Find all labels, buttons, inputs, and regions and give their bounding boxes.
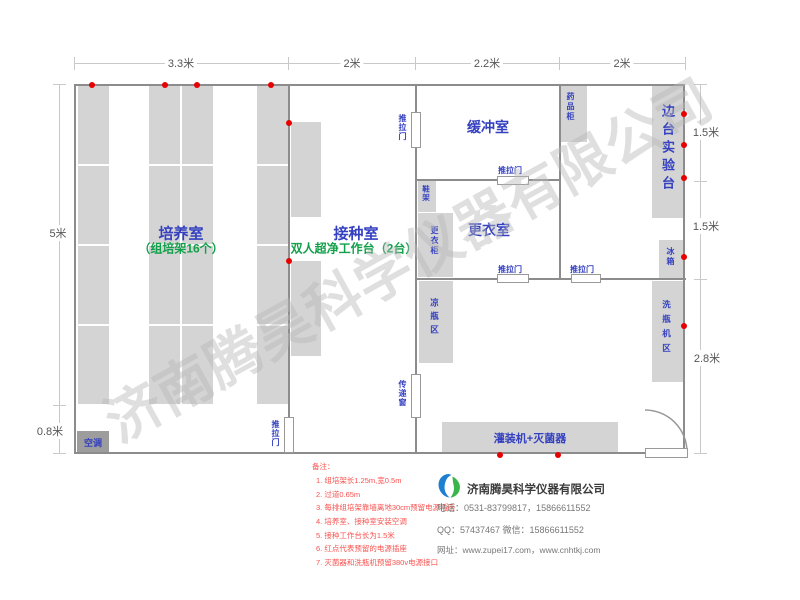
dim-tick [415,57,416,70]
shoe-rack-label: 鞋架 [422,185,430,202]
room-sublabel-cultivation: （组培架16个） [138,240,223,257]
dim-tick [288,57,289,70]
room-label-buffer: 缓冲室 [467,117,509,137]
company-website: 网址：www.zupei17.com，www.cnhtkj.com [437,544,600,556]
sliding-door-cultivation [284,417,294,453]
company-name: 济南腾昊科学仪器有限公司 [467,481,605,497]
note-item-4: 4. 培养室、接种室安装空调 [316,518,407,526]
dim-tick [694,453,707,454]
dim-tick [559,57,560,70]
wall-buffer-changing [415,179,561,181]
power-socket-dot [681,111,687,117]
filling-machine-sterilizer-label: 灌装机+灭菌器 [494,430,566,446]
dim-right-2: 1.5米 [690,218,722,234]
sliding-door-buffer-changing [497,176,529,185]
floor-plan-canvas: 3.3米 2米 2.2米 2米 5米 0.8米 1.5米 1.5米 2.8米 空… [0,0,800,600]
power-socket-dot [555,452,561,458]
power-socket-dot [89,82,95,88]
power-socket-dot [194,82,200,88]
dim-tick [53,405,66,406]
medicine-cabinet-label: 药品柜 [566,92,574,122]
dim-tick [53,453,66,454]
company-qq-wechat: QQ：57437467 微信：15866611552 [437,523,584,536]
dim-tick [694,279,707,280]
power-socket-dot [497,452,503,458]
dim-left-2: 0.8米 [34,423,66,439]
power-socket-dot [162,82,168,88]
sliding-door-inoculation-buffer [411,112,421,148]
dim-tick [694,181,707,182]
dim-top-3: 2.2米 [471,55,503,71]
company-logo [436,472,463,501]
dim-tick [694,84,707,85]
power-socket-dot [286,258,292,264]
bottle-washer-area-label: 洗瓶机区 [662,300,671,358]
dim-top-4: 2米 [610,55,633,71]
notes-title: 备注： [312,463,335,471]
note-item-7: 7. 灭菌器和洗瓶机预留380v电源接口 [316,559,438,567]
bottle-cooling-area-label: 凉瓶区 [430,298,439,339]
dim-top-2: 2米 [340,55,363,71]
note-item-6: 6. 红点代表预留的电源插座 [316,545,407,553]
note-item-2: 2. 过道0.65m [316,491,360,499]
note-item-5: 5. 接种工作台长为1.5米 [316,532,395,540]
transfer-window-label: 传递窗 [398,380,406,407]
power-socket-dot [681,142,687,148]
dim-tick [74,57,75,70]
dim-right-3: 2.8米 [691,350,723,366]
dim-top-1: 3.3米 [165,55,197,71]
sliding-door-label: 推拉门 [570,264,594,275]
sliding-door-label: 推拉门 [271,420,279,447]
dim-right-1: 1.5米 [690,124,722,140]
power-socket-dot [681,175,687,181]
dim-tick [53,84,66,85]
note-item-3: 3. 每排组培架靠墙离地30cm预留电源插座 [316,504,455,512]
wall-cultivation-inoculation [288,84,290,454]
room-sublabel-inoculation: 双人超净工作台（2台） [291,240,418,257]
sliding-door-label: 推拉门 [398,114,406,141]
note-item-1: 1. 组培架长1.25m,宽0.5m [316,477,401,485]
power-socket-dot [681,323,687,329]
wall-changing-washarea [415,278,686,280]
air-conditioner-label: 空调 [84,436,102,449]
power-socket-dot [286,120,292,126]
sliding-door-label: 推拉门 [498,264,522,275]
dim-left-1: 5米 [46,225,69,241]
wardrobe-label: 更衣柜 [430,226,438,256]
wall-buffer-sideroom [559,84,561,280]
sliding-door-label: 推拉门 [498,165,522,176]
fridge-label: 冰箱 [666,247,674,267]
power-socket-dot [681,254,687,260]
company-phone: 电话：0531-83799817，15866611552 [437,501,590,514]
dim-line-left [59,84,60,454]
sliding-door-changing-washarea [497,274,529,283]
sliding-door-sideroom-washarea [571,274,601,283]
transfer-window [411,374,421,418]
entrance-door-leaf [645,448,688,458]
dim-tick [685,57,686,70]
power-socket-dot [268,82,274,88]
room-label-changing: 更衣室 [468,220,510,240]
side-lab-bench-label: 边台实验台 [661,104,674,194]
